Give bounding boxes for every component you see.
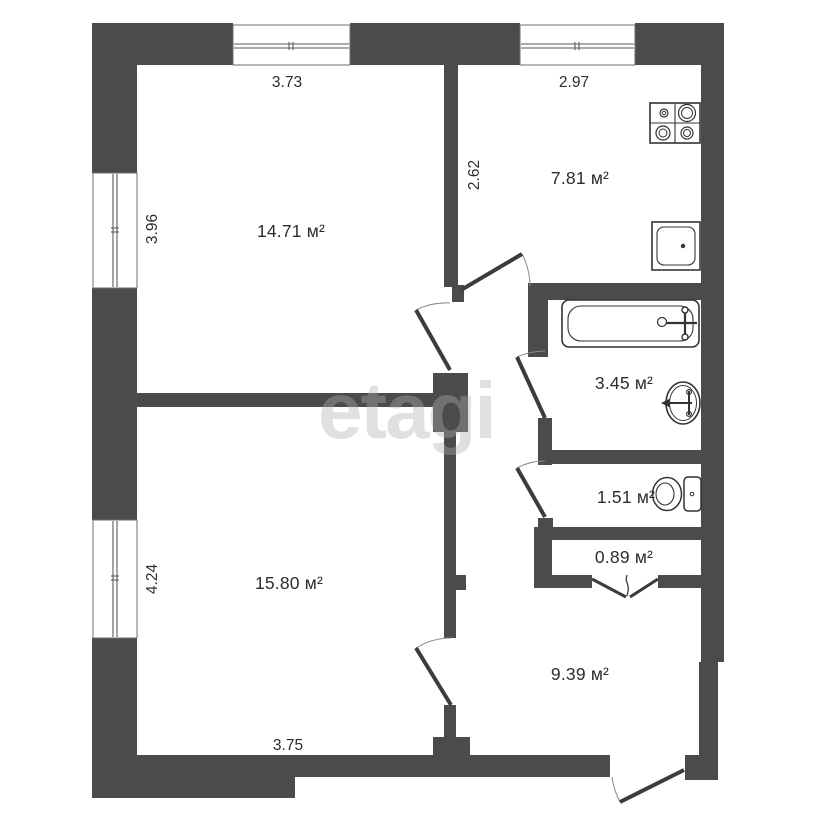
window-top-kitchen <box>520 25 635 65</box>
wall-top-mid <box>350 23 520 65</box>
kitchen-door <box>461 254 530 290</box>
room-label-storage: 0.89 м² <box>595 547 653 567</box>
wall-bottom-mid <box>295 755 610 777</box>
dim-2-62: 2.62 <box>466 160 483 190</box>
living-room-2-door <box>416 638 451 705</box>
wall-bathroom-wc <box>552 450 701 464</box>
wall-bottom-right <box>685 755 718 780</box>
window-top-living1 <box>233 25 350 65</box>
living-room-1-door <box>416 303 450 370</box>
stove-icon <box>650 103 700 143</box>
bathroom-door <box>517 351 545 418</box>
kitchen-sink-icon <box>652 222 700 270</box>
wall-bathroom-left-upper <box>528 283 548 357</box>
room-label-living1: 14.71 м² <box>257 221 325 241</box>
dim-3-75: 3.75 <box>273 737 303 754</box>
wall-right-upper <box>701 23 724 662</box>
room-label-bathroom: 3.45 м² <box>595 373 653 393</box>
bathtub-icon <box>562 300 699 347</box>
wall-left-upper <box>92 23 137 173</box>
corridor-wall-stub <box>455 575 466 590</box>
wall-bathroom-left-lower <box>538 418 552 465</box>
watermark-logo: etagi <box>318 366 495 455</box>
wall-center-upper <box>444 65 458 287</box>
room-label-hallway: 9.39 м² <box>551 664 609 684</box>
dim-3-73: 3.73 <box>272 74 302 91</box>
wall-left-mid <box>92 288 137 520</box>
fixtures <box>562 103 701 511</box>
window-left-living2 <box>93 520 137 638</box>
wall-bottom-left-thick <box>92 755 295 798</box>
wall-storage-bottom-left <box>534 575 592 588</box>
storage-folding-door <box>592 575 658 597</box>
wall-kitchen-bottom <box>530 283 701 300</box>
dim-3-96: 3.96 <box>144 214 161 244</box>
dim-4-24: 4.24 <box>144 564 161 595</box>
toilet-icon <box>653 477 702 511</box>
floor-plan-drawing: 14.71 м² 7.81 м² 3.45 м² 1.51 м² 0.89 м²… <box>0 0 821 822</box>
washbasin-icon <box>661 382 700 424</box>
wall-storage-bottom-right <box>658 575 701 588</box>
floor-plan: 14.71 м² 7.81 м² 3.45 м² 1.51 м² 0.89 м²… <box>0 0 821 822</box>
wall-center-lower <box>444 432 456 638</box>
room-label-wc: 1.51 м² <box>597 487 655 507</box>
room-label-living2: 15.80 м² <box>255 573 323 593</box>
room-label-kitchen: 7.81 м² <box>551 168 609 188</box>
entrance-door <box>612 770 684 802</box>
wall-wc-storage <box>552 527 701 540</box>
wc-door <box>517 461 545 517</box>
window-left-living1 <box>93 173 137 288</box>
dim-2-97: 2.97 <box>559 74 589 91</box>
wall-center-foot <box>433 737 470 755</box>
sink-drain <box>681 244 685 248</box>
windows <box>93 25 635 638</box>
room2-door-jamb <box>444 705 456 737</box>
